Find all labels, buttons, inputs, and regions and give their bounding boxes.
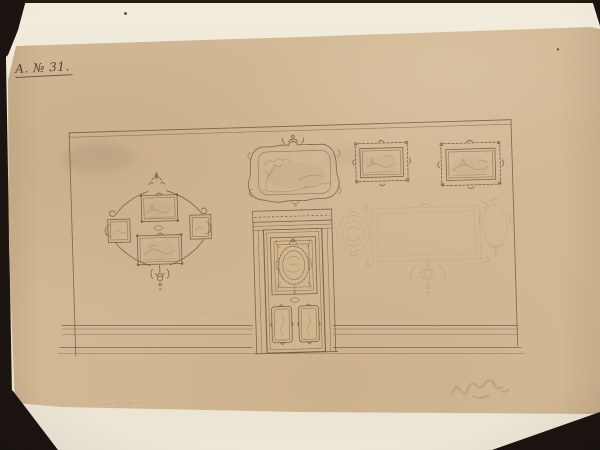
door	[251, 209, 338, 354]
right-framed-pictures	[352, 137, 504, 192]
sheet-speck	[124, 12, 127, 15]
photo-edge-top	[0, 0, 600, 3]
paper-speck	[557, 48, 559, 50]
pencil-marks	[105, 402, 143, 404]
collector-stamp	[451, 380, 508, 399]
paper-tilt-wrapper: A. № 31.	[0, 0, 600, 450]
wall-elevation-drawing	[0, 0, 600, 450]
pencil-oval-medallion	[337, 211, 370, 256]
paper-speck	[202, 312, 204, 314]
overdoor-cartouche	[247, 134, 341, 208]
pencil-cartouche	[479, 198, 512, 256]
framed-picture-2	[437, 139, 504, 189]
left-frame-group	[103, 171, 213, 292]
pencil-panel-sketch	[336, 198, 512, 295]
drawing-paper: A. № 31.	[0, 0, 600, 450]
photograph: A. № 31.	[0, 0, 600, 450]
